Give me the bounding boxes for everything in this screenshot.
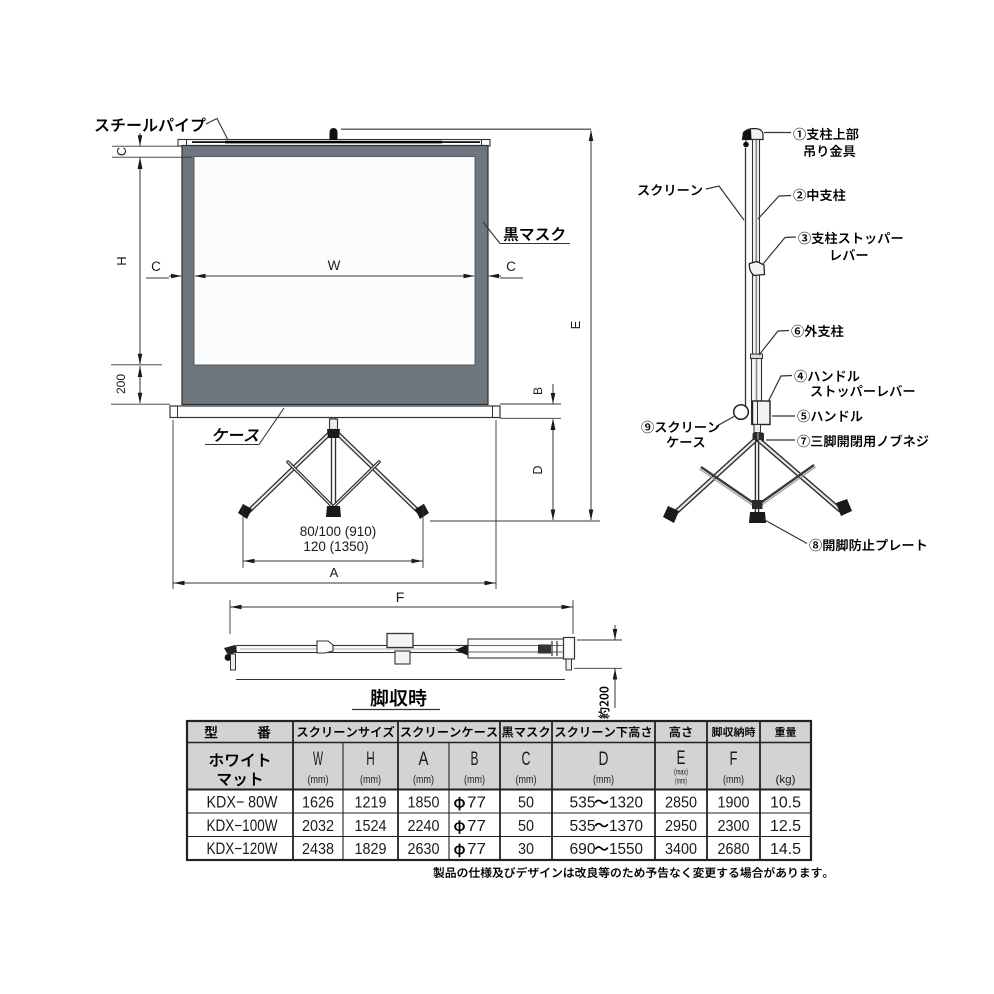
svg-text:690: 690	[570, 841, 596, 858]
svg-text:535: 535	[570, 795, 596, 812]
svg-text:KDX−100W: KDX−100W	[207, 817, 278, 835]
svg-text:12.5: 12.5	[770, 818, 801, 835]
svg-text:B: B	[471, 748, 479, 770]
svg-text:14.5: 14.5	[770, 841, 801, 858]
svg-text:2850: 2850	[665, 795, 697, 812]
svg-text:2240: 2240	[408, 818, 440, 835]
svg-text:1550: 1550	[609, 841, 643, 858]
svg-text:535: 535	[570, 818, 596, 835]
svg-text:E: E	[568, 320, 583, 329]
svg-text:C: C	[151, 259, 161, 274]
svg-text:30: 30	[518, 841, 534, 858]
svg-text:W: W	[313, 748, 323, 770]
svg-text:C: C	[506, 259, 516, 274]
svg-text:2680: 2680	[718, 841, 750, 858]
svg-text:1850: 1850	[408, 795, 440, 812]
svg-text:KDX−120W: KDX−120W	[207, 840, 278, 858]
svg-text:1900: 1900	[718, 795, 750, 812]
svg-text:H: H	[114, 256, 129, 265]
svg-text:200: 200	[114, 374, 128, 394]
svg-text:77: 77	[467, 841, 486, 858]
svg-text:(max): (max)	[674, 768, 688, 777]
svg-text:(mm): (mm)	[464, 774, 485, 786]
svg-text:D: D	[531, 465, 545, 474]
svg-text:B: B	[531, 387, 545, 395]
svg-text:120 (1350): 120 (1350)	[303, 539, 368, 554]
svg-text:50: 50	[518, 818, 534, 835]
svg-text:1829: 1829	[355, 841, 387, 858]
svg-text:(mm): (mm)	[675, 777, 687, 786]
svg-text:1524: 1524	[355, 818, 387, 835]
svg-text:(mm): (mm)	[723, 774, 744, 786]
svg-text:A: A	[419, 748, 429, 770]
svg-text:C: C	[115, 147, 129, 156]
svg-text:1626: 1626	[302, 795, 334, 812]
svg-text:F: F	[396, 589, 405, 605]
svg-text:2300: 2300	[718, 818, 750, 835]
svg-text:A: A	[330, 565, 339, 580]
svg-text:H: H	[366, 748, 375, 770]
svg-text:80/100 (910): 80/100 (910)	[300, 524, 377, 539]
svg-text:(kg): (kg)	[776, 774, 796, 786]
svg-text:(mm): (mm)	[308, 774, 329, 786]
svg-text:KDX− 80W: KDX− 80W	[207, 794, 278, 812]
svg-text:2438: 2438	[302, 841, 334, 858]
svg-text:50: 50	[518, 795, 534, 812]
svg-text:77: 77	[467, 818, 486, 835]
svg-text:2032: 2032	[302, 818, 334, 835]
svg-text:1320: 1320	[609, 795, 643, 812]
svg-text:F: F	[730, 748, 738, 770]
svg-text:1370: 1370	[609, 818, 643, 835]
svg-text:10.5: 10.5	[770, 795, 801, 812]
svg-text:2950: 2950	[665, 818, 697, 835]
svg-text:(mm): (mm)	[360, 774, 381, 786]
svg-text:(mm): (mm)	[413, 774, 434, 786]
svg-text:C: C	[522, 748, 531, 770]
svg-text:(mm): (mm)	[516, 774, 537, 786]
svg-text:3400: 3400	[665, 841, 697, 858]
svg-text:(mm): (mm)	[593, 774, 614, 786]
svg-text:2630: 2630	[408, 841, 440, 858]
svg-text:E: E	[677, 747, 686, 769]
svg-text:1219: 1219	[355, 795, 387, 812]
svg-text:W: W	[328, 258, 341, 273]
svg-text:D: D	[599, 748, 609, 770]
svg-text:77: 77	[467, 795, 486, 812]
